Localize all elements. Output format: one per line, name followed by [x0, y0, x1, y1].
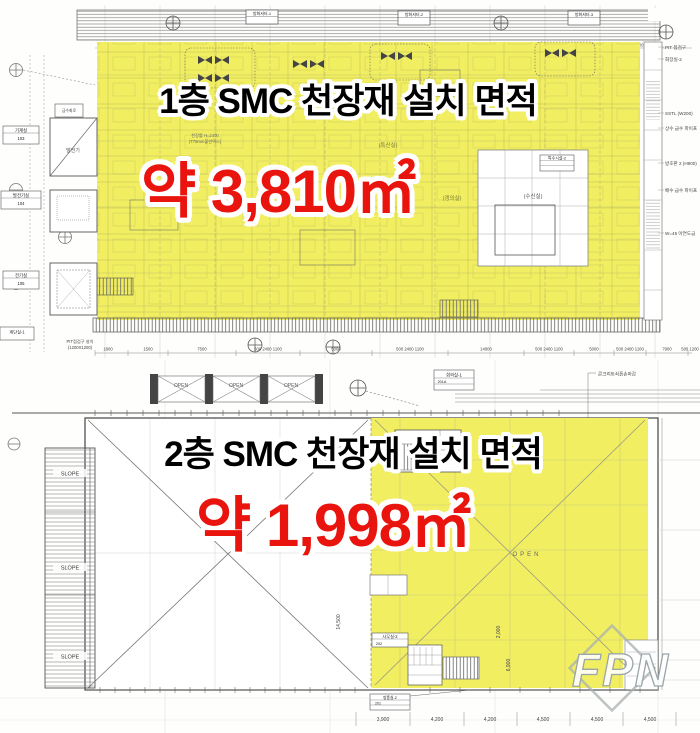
bottom-wall-hatch	[93, 318, 660, 354]
open-slots: OPEN OPEN OPEN	[150, 374, 323, 404]
slope-label: SLOPE	[61, 566, 80, 572]
dim-2000: 2,000	[496, 626, 502, 639]
room-tag-no: 103	[18, 136, 26, 141]
top-right-band	[455, 390, 700, 402]
right-service-column	[644, 42, 662, 320]
open-label: OPEN	[284, 383, 299, 389]
dim-label: 4,500	[537, 717, 550, 723]
open-area-label: OPEN	[512, 552, 541, 558]
fire-shutter-2-label: 방화셔터-2	[405, 11, 424, 17]
room-tag-name: 전기실	[15, 272, 27, 279]
ceiling-note: 천장틀 H=2400	[191, 132, 219, 139]
office-label: 사무실-2	[382, 633, 398, 640]
dim-label: 7500	[197, 347, 207, 352]
grid-marker-icon	[10, 64, 96, 290]
dim-label: 5000	[331, 347, 341, 352]
margin-note: 상수 급수 파이프	[665, 125, 697, 132]
top-mid-cluster	[395, 430, 461, 472]
watermark-text: FPN	[572, 644, 670, 696]
dim-label: 1800	[103, 347, 113, 352]
dim-label: 14000	[480, 347, 492, 352]
dim-label: 7900	[662, 347, 672, 352]
room-label: (수신실)	[524, 192, 543, 200]
room-tag-name: 발전기실	[13, 192, 29, 199]
open-label: OPEN	[229, 383, 244, 389]
dim-label: 4,200	[484, 717, 497, 723]
dim-label: 4,200	[431, 717, 444, 723]
dim-label: 500 2400 1100	[616, 347, 644, 352]
plan2-marker-icon	[350, 380, 420, 406]
dim-label: 500 1200	[681, 347, 699, 352]
room-label: (특신실)	[379, 141, 398, 149]
dim-label: 500 2400 1100	[396, 347, 424, 352]
pit-note: PIT점검구 설치	[67, 338, 94, 345]
generator-label: 발전기	[66, 147, 80, 154]
windbreak-label: 방풍실-2	[383, 695, 397, 700]
margin-note: SSTL (W200)	[665, 111, 693, 116]
open-label: OPEN	[174, 383, 189, 389]
bottom-dimension-row-2f: 3,900 4,200 4,200 4,500 4,500 4,500	[356, 712, 676, 726]
dim-label: 5000	[589, 347, 599, 352]
windbreak-tag: 방풍실-2 201	[370, 690, 470, 710]
fire-shutter-3-label: 방화셔터-3	[575, 11, 594, 17]
dim-6900: 6,900	[506, 659, 512, 672]
room-label: (갱의실)	[443, 194, 462, 202]
dim-label: 500 2400 1100	[254, 347, 282, 352]
grid-marker-icon-2f	[8, 438, 20, 450]
concrete-note: 콘크리트쇠흙손마감	[598, 371, 637, 378]
slope-band: SLOPE SLOPE SLOPE	[45, 448, 95, 688]
right-margin-notes: PIT 점검구 화장실-2 SSTL (W200) 상수 급수 파이프 방호판 …	[658, 44, 697, 237]
pump-label: 급수회로	[62, 108, 76, 113]
dim-label: 4,500	[644, 717, 657, 723]
shutter-sign-note: 방화셔터표지	[341, 181, 363, 187]
dim-label: 500 2400 1100	[535, 347, 563, 352]
margin-note: W=45 아연도금	[665, 230, 695, 237]
floor-plan-1f: 500 5200 10000 5200 500 1300 10000 5100 …	[0, 0, 700, 360]
meeting-room-label: 회의실-1	[446, 372, 462, 379]
pit-note-2: (1200X1200)	[68, 345, 93, 350]
dim-14500: 14,500	[336, 614, 342, 630]
document-page: 500 5200 10000 5200 500 1300 10000 5100 …	[0, 0, 700, 733]
margin-note: PIT 점검구	[665, 44, 686, 51]
windbreak-no: 201	[375, 701, 381, 705]
floor-plan-2f: OPEN OPEN OPEN 회의실-1 201A 콘크리트쇠흙손마감	[0, 360, 700, 733]
bottom-dimension-row-1f: 1800 1500 7500 500 2400 1100 5000 500 24…	[95, 347, 699, 357]
dim-label: 3,900	[377, 717, 390, 723]
slope-label: SLOPE	[61, 472, 80, 478]
room-tag-name: 기계실	[15, 127, 27, 134]
stair-tag: 계단실-1	[9, 329, 25, 336]
meeting-room-no: 201A	[438, 380, 447, 384]
room-tag-no: 104	[18, 201, 26, 206]
dim-label: 1500	[143, 347, 153, 352]
meeting-room-tag: 회의실-1 201A	[434, 370, 474, 390]
margin-note: 방호판 2 (H900)	[665, 160, 697, 166]
margin-note: 배수 급수 파이프	[665, 187, 697, 194]
office-no: 202	[376, 642, 382, 646]
special-facility-label: 특수시설-2	[548, 155, 567, 161]
left-rooms-1f: 급수회로 발전기	[50, 104, 97, 315]
margin-note: 화장실-2	[665, 56, 682, 63]
room-tag-no: 105	[18, 281, 26, 286]
slope-label: SLOPE	[61, 655, 80, 661]
top-wall-2f	[12, 410, 700, 416]
ceiling-note-2: (T75mm불연텍스)	[189, 138, 222, 145]
dim-label: 4,500	[591, 717, 604, 723]
fire-shutter-1-label: 방화셔터-1	[253, 10, 272, 16]
